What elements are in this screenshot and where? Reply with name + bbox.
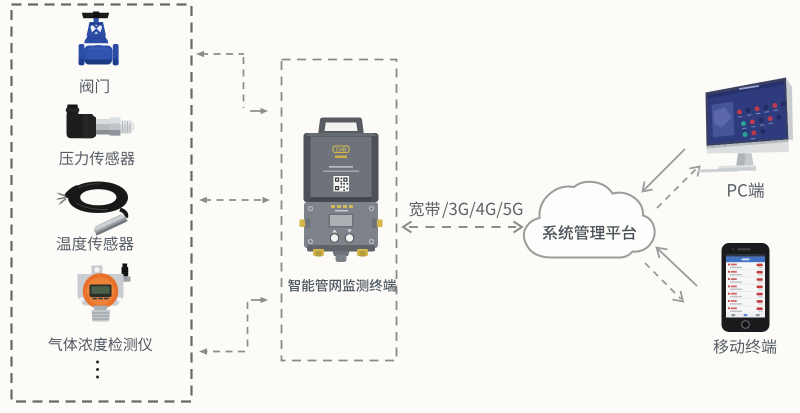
svg-text:CHB: CHB [336, 147, 347, 153]
